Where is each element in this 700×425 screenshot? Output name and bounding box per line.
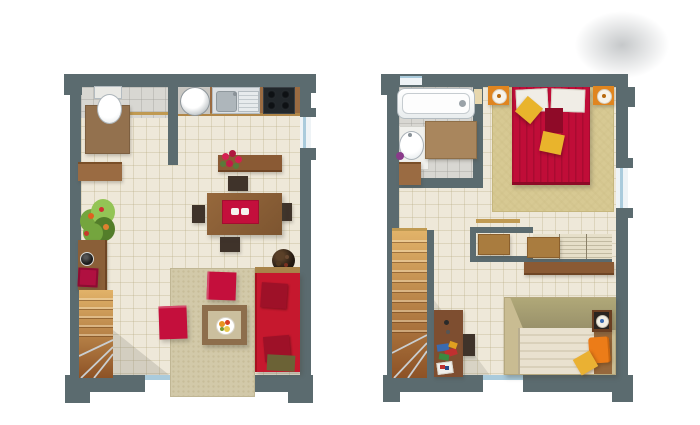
nightstand-right: [593, 86, 614, 105]
storage-box-1: [478, 234, 510, 255]
floor-plan-canvas: [0, 0, 700, 425]
burner-4: [281, 101, 290, 110]
staircase-2: [392, 231, 427, 378]
closet-wall-top: [470, 227, 533, 233]
top-window: [400, 76, 422, 85]
right-wall-lower: [300, 148, 311, 392]
window-pier-upper: [300, 108, 316, 117]
closet-shelf-line: [476, 219, 520, 223]
nightstand-2: [592, 310, 612, 332]
sink-drainer: [238, 91, 259, 112]
desk-item-2: [446, 330, 450, 334]
floor-cushion-top: [207, 272, 237, 301]
toilet-bowl: [97, 94, 122, 124]
desk-chair: [463, 334, 475, 356]
right-wall-lower-2: [616, 208, 628, 392]
fruit-bowl: [216, 317, 235, 335]
right-window-glass: [303, 117, 306, 148]
yellow-cushion-2: [539, 131, 565, 155]
corner-pier-top-left: [64, 74, 82, 95]
burner-2: [281, 90, 290, 99]
bathroom-door: [474, 89, 482, 104]
bath-cabinet: [399, 162, 421, 185]
storage-box-2: [527, 237, 560, 258]
plate-1: [231, 208, 239, 215]
corner-pier-top-right: [298, 74, 316, 93]
dining-chair-left: [192, 205, 205, 223]
burner-3: [267, 101, 276, 110]
basin-faucet: [408, 133, 412, 137]
stair-wall: [427, 230, 434, 380]
bath-mat: [425, 121, 477, 159]
corner-pier-bottom-right-2: [612, 375, 633, 402]
red-throw: [545, 108, 563, 133]
kitchen-partition-wall: [168, 87, 178, 165]
desk-item-1: [444, 320, 449, 325]
corner-pier-top-right-2: [616, 87, 635, 107]
window-pier-lower-2: [616, 208, 633, 218]
red-stool: [78, 267, 99, 287]
tub-faucet: [459, 100, 466, 107]
bathtub: [397, 88, 475, 119]
sofa-cushion-1: [260, 282, 288, 309]
dining-chair-bottom: [220, 237, 240, 252]
wall-shelf: [524, 262, 614, 275]
sink-faucet: [233, 92, 237, 96]
floor-cushion-left: [158, 306, 187, 340]
plate-2: [241, 208, 249, 215]
staircase: [79, 290, 113, 378]
burner-1: [267, 90, 276, 99]
sofa-olive-cushion: [267, 354, 296, 371]
soap-dish: [396, 152, 404, 160]
window-pier-upper-2: [616, 158, 633, 168]
desk-bowl: [80, 252, 94, 266]
green-plant: [80, 199, 116, 244]
dining-chair-top: [228, 176, 248, 191]
corner-pier-bottom-right: [288, 375, 313, 403]
washing-machine: [180, 87, 210, 116]
nightstand-left: [488, 86, 509, 105]
corner-pier-bottom-left: [65, 375, 90, 403]
window-pier-lower: [300, 148, 316, 160]
corner-pier-bottom-left-2: [383, 375, 400, 402]
red-flowers: [220, 149, 248, 171]
right-window-2-glass: [620, 168, 623, 208]
corner-pier-top-left-2: [381, 74, 399, 95]
bottom-door-opening: [483, 380, 523, 393]
wall-cabinet: [78, 162, 122, 181]
books-and-papers: [436, 341, 460, 375]
